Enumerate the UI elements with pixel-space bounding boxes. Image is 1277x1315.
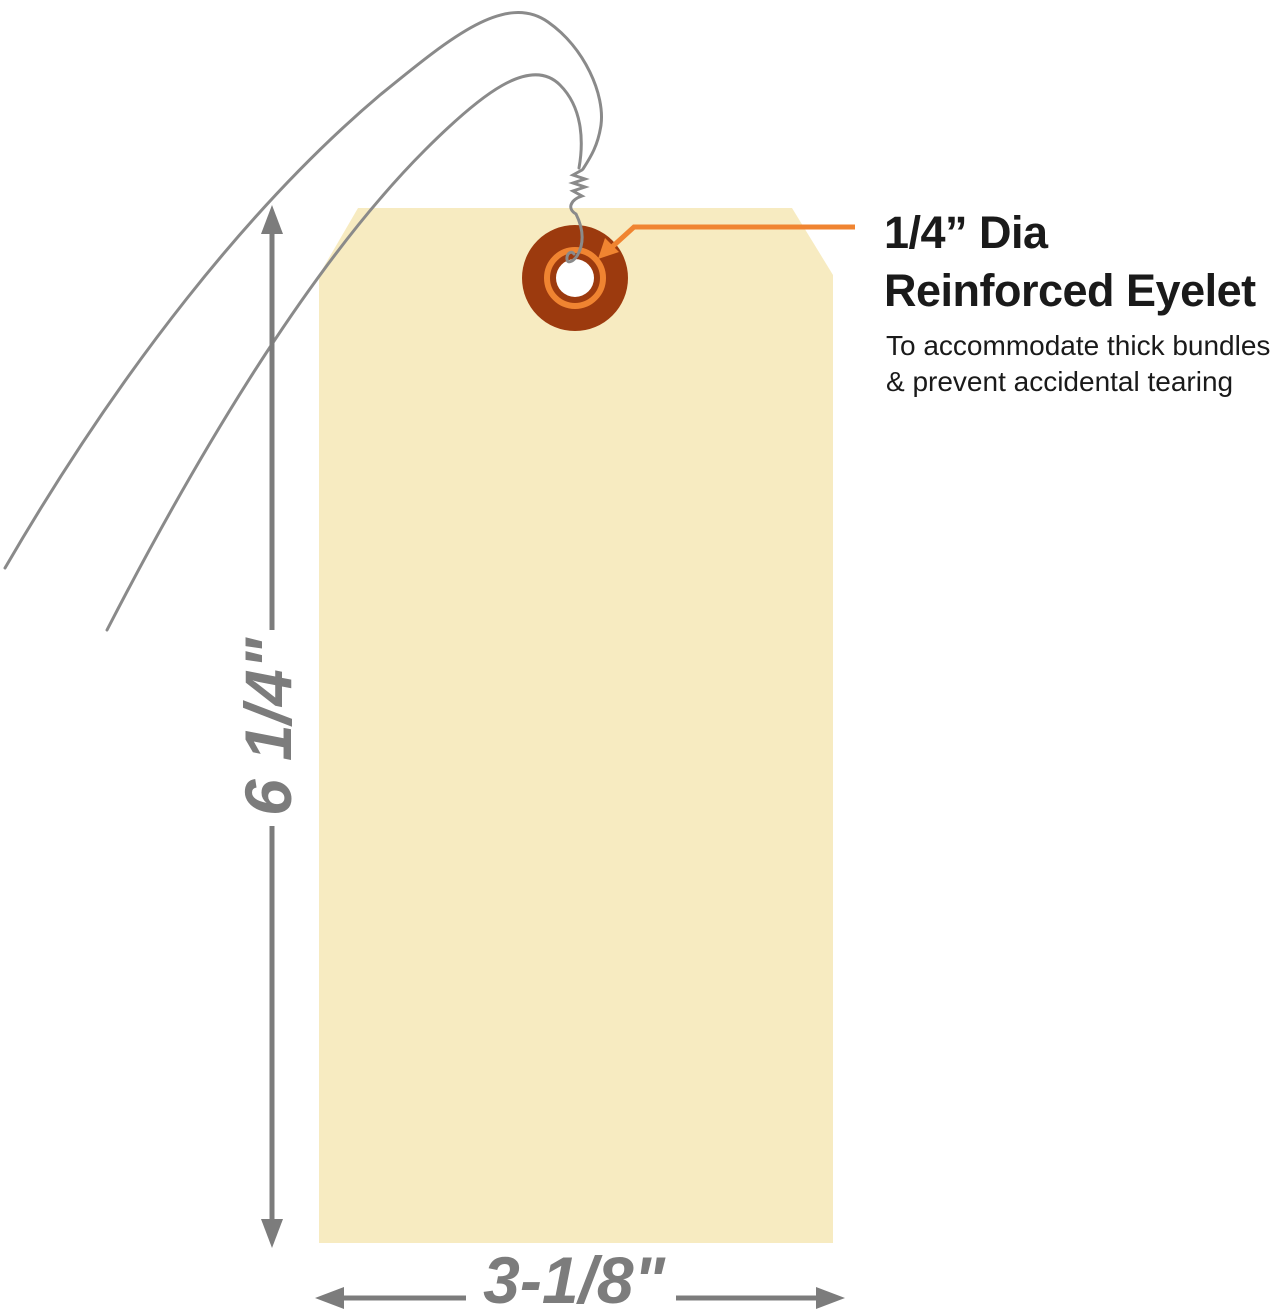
- arrow-down-icon: [261, 1219, 283, 1248]
- arrow-left-icon: [315, 1287, 344, 1309]
- callout-title-line2: Reinforced Eyelet: [884, 262, 1256, 320]
- callout-description-line2: & prevent accidental tearing: [886, 364, 1270, 400]
- height-dimension-label: 6 1/4": [230, 638, 306, 816]
- callout-description-line1: To accommodate thick bundles: [886, 328, 1270, 364]
- arrow-right-icon: [816, 1287, 845, 1309]
- product-diagram-shipping-tag: 1/4” Dia Reinforced Eyelet To accommodat…: [0, 0, 1277, 1315]
- callout-title: 1/4” Dia Reinforced Eyelet: [884, 204, 1256, 320]
- callout-description: To accommodate thick bundles & prevent a…: [886, 328, 1270, 400]
- tag-illustration: [0, 0, 1277, 1315]
- eyelet-hole: [556, 259, 594, 297]
- tag-shape: [319, 208, 833, 1243]
- width-dimension-label: 3-1/8": [483, 1242, 665, 1315]
- reinforced-eyelet: [522, 225, 628, 331]
- callout-title-line1: 1/4” Dia: [884, 204, 1256, 262]
